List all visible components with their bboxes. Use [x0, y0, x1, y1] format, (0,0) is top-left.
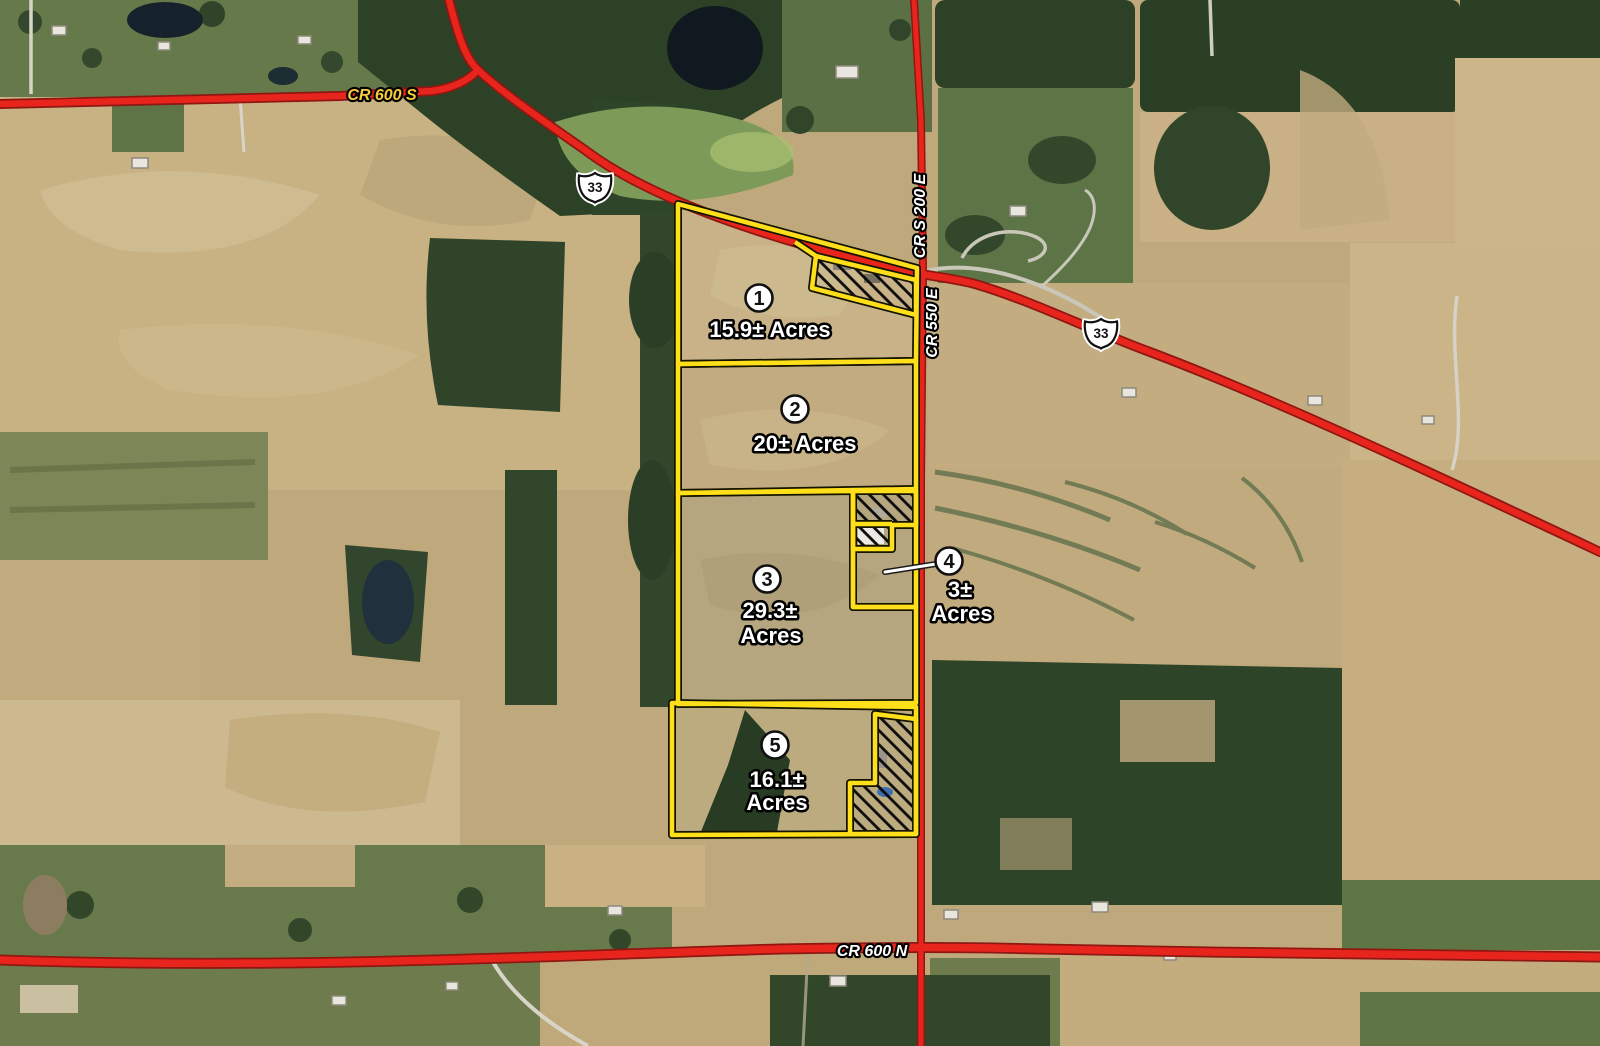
parcel-1-acres: 15.9± Acres [709, 317, 830, 342]
us-33-shield-west: 33 [579, 173, 611, 203]
parcel-2-number: 2 [789, 399, 800, 421]
aerial-parcel-map: CR 600 S CR 600 N CR S 200 E CR 550 E 33… [0, 0, 1600, 1046]
parcel-3-acres-line1: 29.3± [743, 598, 798, 623]
parcel-2-acres: 20± Acres [754, 431, 857, 456]
parcel-4-number: 4 [943, 551, 955, 573]
road-label-cr-550-e: CR 550 E [924, 287, 941, 358]
parcel-3-number: 3 [761, 569, 772, 591]
parcel-1-number: 1 [753, 288, 764, 310]
parcel-5-acres-line1: 16.1± [750, 767, 805, 792]
parcel-4-acres-line2: Acres [931, 601, 992, 626]
us-33-shield-east: 33 [1085, 319, 1117, 349]
map-canvas: CR 600 S CR 600 N CR S 200 E CR 550 E 33… [0, 0, 1600, 1046]
parcel-5-number: 5 [769, 735, 780, 757]
parcel-3-acres-line2: Acres [740, 623, 801, 648]
road-label-cr-600-s: CR 600 S [347, 87, 417, 104]
parcel-4-acres-line1: 3± [948, 577, 972, 602]
road-label-cr-s-200-e: CR S 200 E [912, 172, 929, 258]
parcel-5-acres-line2: Acres [746, 790, 807, 815]
road-label-cr-600-n: CR 600 N [837, 943, 908, 960]
aerial-background [0, 0, 1600, 1046]
us-33-shield-west-number: 33 [587, 180, 603, 195]
us-33-shield-east-number: 33 [1093, 326, 1109, 341]
